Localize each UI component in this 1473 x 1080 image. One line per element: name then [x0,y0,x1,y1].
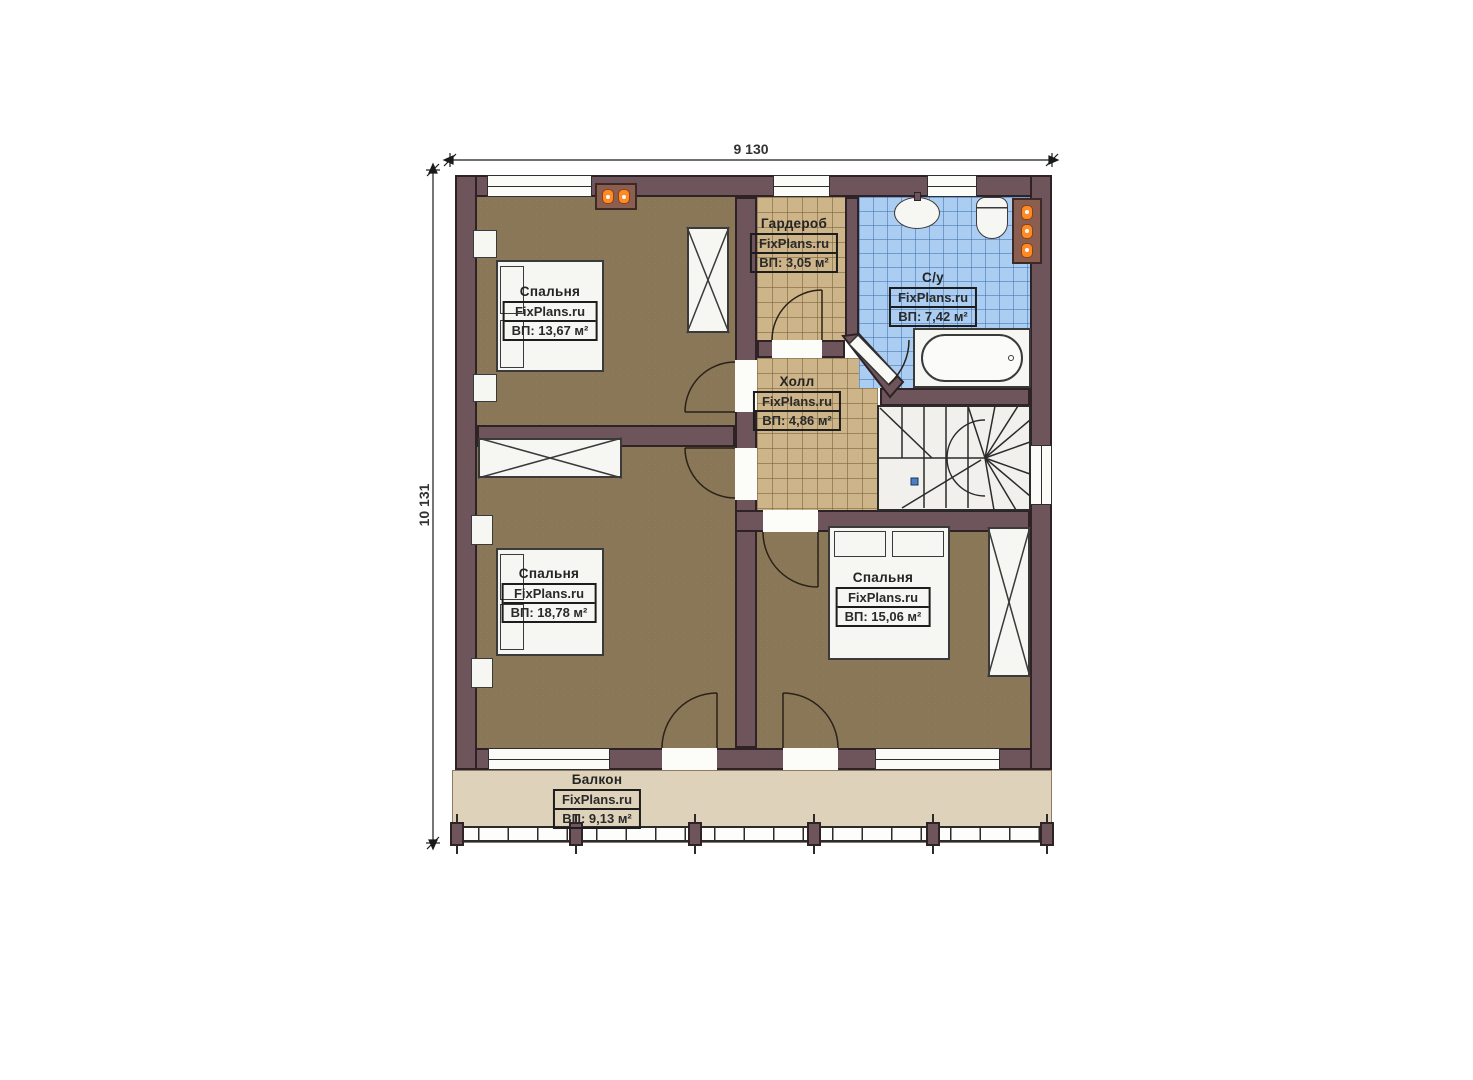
room-label-balcony: Балкон FixPlans.ru ВП: 9,13 м² [553,772,641,829]
railing-post [450,822,464,846]
room-area: ВП: 4,86 м² [755,412,839,429]
room-info-box: FixPlans.ru ВП: 13,67 м² [503,301,598,341]
room-name: Балкон [572,772,623,787]
room-label-wardrobe: Гардероб FixPlans.ru ВП: 3,05 м² [750,216,838,273]
room-name: Спальня [520,284,580,299]
room-area: ВП: 13,67 м² [505,322,596,339]
door-opening-bedroom-3 [763,510,818,532]
door-opening-balcony-left [662,748,717,770]
nightstand-icon [471,658,493,688]
room-info-box: FixPlans.ru ВП: 9,13 м² [553,789,641,829]
radiator-dot-icon [1021,243,1033,258]
room-label-bedroom-1: Спальня FixPlans.ru ВП: 13,67 м² [503,284,598,341]
sink-icon [894,197,940,229]
dimension-width-label: 9 130 [733,141,768,157]
window-top-bathroom [927,175,977,197]
door-opening-balcony-right [783,748,838,770]
nightstand-icon [473,230,497,258]
railing-post [688,822,702,846]
window-bottom-bedroom-2 [488,748,610,770]
wall-wardrobe-bathroom [845,197,859,340]
brand-watermark: FixPlans.ru [891,289,975,308]
wardrobe-icon [988,527,1030,677]
nightstand-icon [471,515,493,545]
radiator-dot-icon [602,189,614,204]
brand-watermark: FixPlans.ru [555,791,639,810]
railing-post [807,822,821,846]
pillow-icon [834,531,886,557]
pillow-icon [892,531,944,557]
room-label-hall: Холл FixPlans.ru ВП: 4,86 м² [753,374,841,431]
room-info-box: FixPlans.ru ВП: 15,06 м² [836,587,931,627]
radiator-icon [595,183,637,210]
dimension-height-label: 10 131 [416,484,432,527]
radiator-dot-icon [618,189,630,204]
toilet-icon [976,197,1008,239]
bathtub-drain-icon [1008,355,1014,361]
railing-post [1040,822,1054,846]
room-label-bedroom-3: Спальня FixPlans.ru ВП: 15,06 м² [836,570,931,627]
floor-plan-canvas: Спальня FixPlans.ru ВП: 13,67 м² Гардеро… [0,0,1473,1080]
window-top-wardrobe [773,175,830,197]
stair-node-icon [911,478,918,485]
wardrobe-icon [478,438,622,478]
brand-watermark: FixPlans.ru [752,235,836,254]
balcony-railing [450,826,1054,842]
room-info-box: FixPlans.ru ВП: 3,05 м² [750,233,838,273]
room-info-box: FixPlans.ru ВП: 7,42 м² [889,287,977,327]
room-area: ВП: 15,06 м² [838,608,929,625]
room-area: ВП: 3,05 м² [752,254,836,271]
room-name: Холл [779,374,814,389]
room-info-box: FixPlans.ru ВП: 4,86 м² [753,391,841,431]
room-name: Спальня [519,566,579,581]
room-area: ВП: 18,78 м² [504,604,595,621]
window-right-stairs [1030,445,1052,505]
room-info-box: FixPlans.ru ВП: 18,78 м² [502,583,597,623]
window-top-bedroom-1 [487,175,592,197]
brand-watermark: FixPlans.ru [504,585,595,604]
door-opening-bedroom-2 [735,448,757,500]
railing-post [926,822,940,846]
room-name: Спальня [853,570,913,585]
room-name: С/у [922,270,944,285]
room-label-bedroom-2: Спальня FixPlans.ru ВП: 18,78 м² [502,566,597,623]
room-name: Гардероб [761,216,827,231]
brand-watermark: FixPlans.ru [838,589,929,608]
room-area: ВП: 7,42 м² [891,308,975,325]
room-area: ВП: 9,13 м² [555,810,639,827]
radiator-icon [1012,198,1042,264]
brand-watermark: FixPlans.ru [505,303,596,322]
radiator-dot-icon [1021,205,1033,220]
room-label-bathroom: С/у FixPlans.ru ВП: 7,42 м² [889,270,977,327]
door-opening-wardrobe [772,340,822,358]
brand-watermark: FixPlans.ru [755,393,839,412]
wardrobe-icon [687,227,729,333]
staircase [878,406,1030,510]
wall-bathroom-bottom [880,388,1030,406]
window-bottom-bedroom-3 [875,748,1000,770]
faucet-icon [914,192,921,201]
radiator-dot-icon [1021,224,1033,239]
nightstand-icon [473,374,497,402]
